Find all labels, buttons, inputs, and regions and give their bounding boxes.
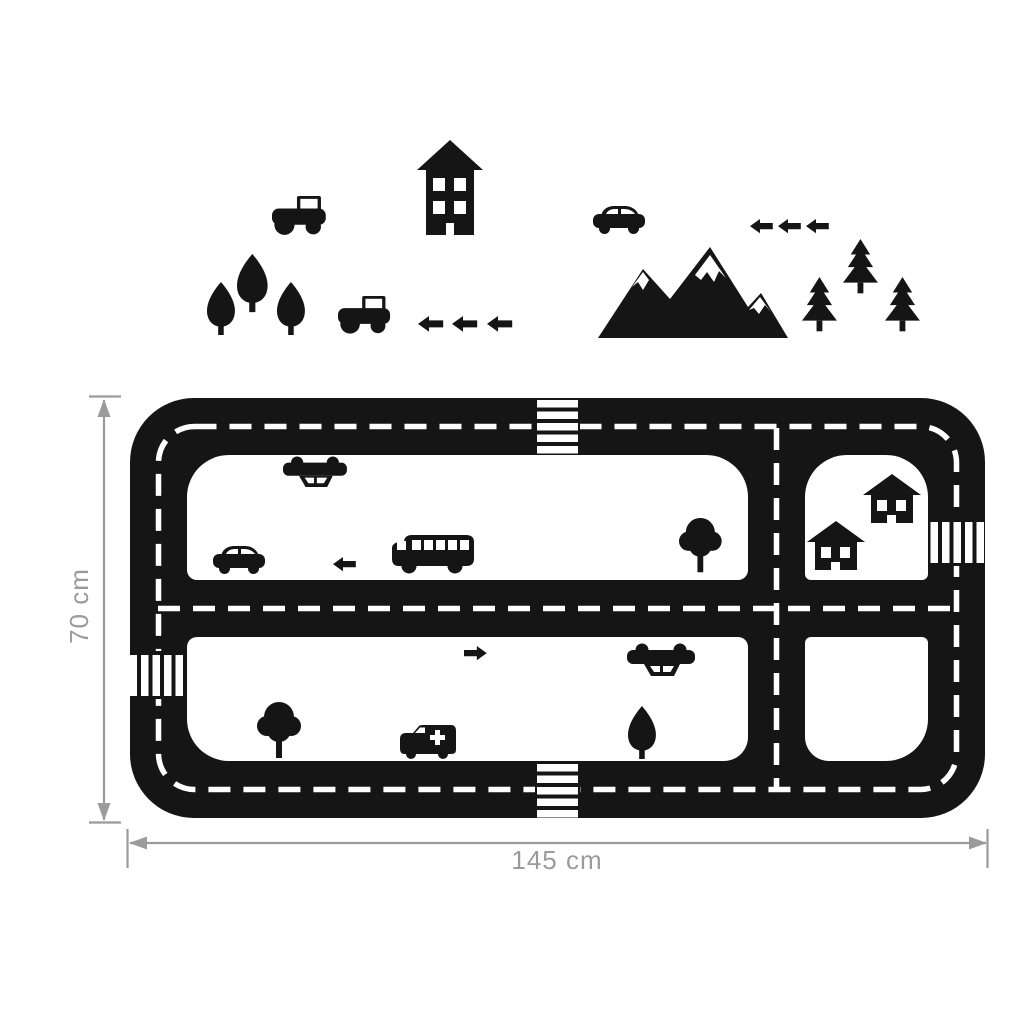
arrow-left-icon (418, 316, 443, 332)
arrowhead-right (969, 837, 987, 850)
tractor-icon (338, 296, 390, 334)
pine-tree-icon (885, 277, 920, 331)
road-track (130, 398, 986, 818)
tree-icon (207, 282, 235, 335)
arrow-left-icon (750, 219, 773, 233)
arrowhead-left (129, 837, 147, 850)
car-icon (593, 206, 645, 234)
arrowhead-up (98, 399, 111, 417)
mountains-icon (598, 247, 788, 338)
top-decorations (207, 140, 920, 338)
tall-house-icon (417, 140, 483, 235)
arrow-left-icon (806, 219, 829, 233)
arrowhead-down (98, 803, 111, 821)
pine-tree-icon (802, 277, 837, 331)
tree-icon (277, 282, 305, 335)
infield-lower-right (805, 637, 928, 761)
decal-scene: 70 cm 145 cm (0, 0, 1024, 1024)
tree-icon (237, 254, 268, 312)
height-dimension-label: 70 cm (64, 568, 94, 644)
wall-decal-product-image: 70 cm 145 cm (0, 0, 1024, 1024)
width-dimension-label: 145 cm (511, 845, 602, 875)
arrow-left-icon (487, 316, 512, 332)
pine-tree-icon (843, 239, 878, 293)
arrow-left-icon (452, 316, 477, 332)
arrow-left-icon (778, 219, 801, 233)
tractor-icon (272, 196, 326, 235)
